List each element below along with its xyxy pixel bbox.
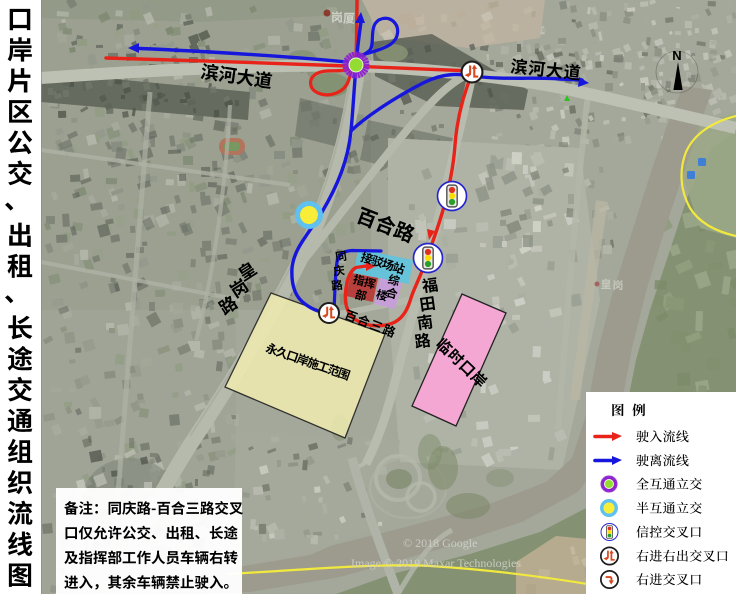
- svg-text:Image © 2019 Maxar Technologie: Image © 2019 Maxar Technologies: [351, 556, 521, 570]
- svg-text:N: N: [672, 48, 681, 63]
- svg-text:© 2018 Google: © 2018 Google: [403, 536, 477, 550]
